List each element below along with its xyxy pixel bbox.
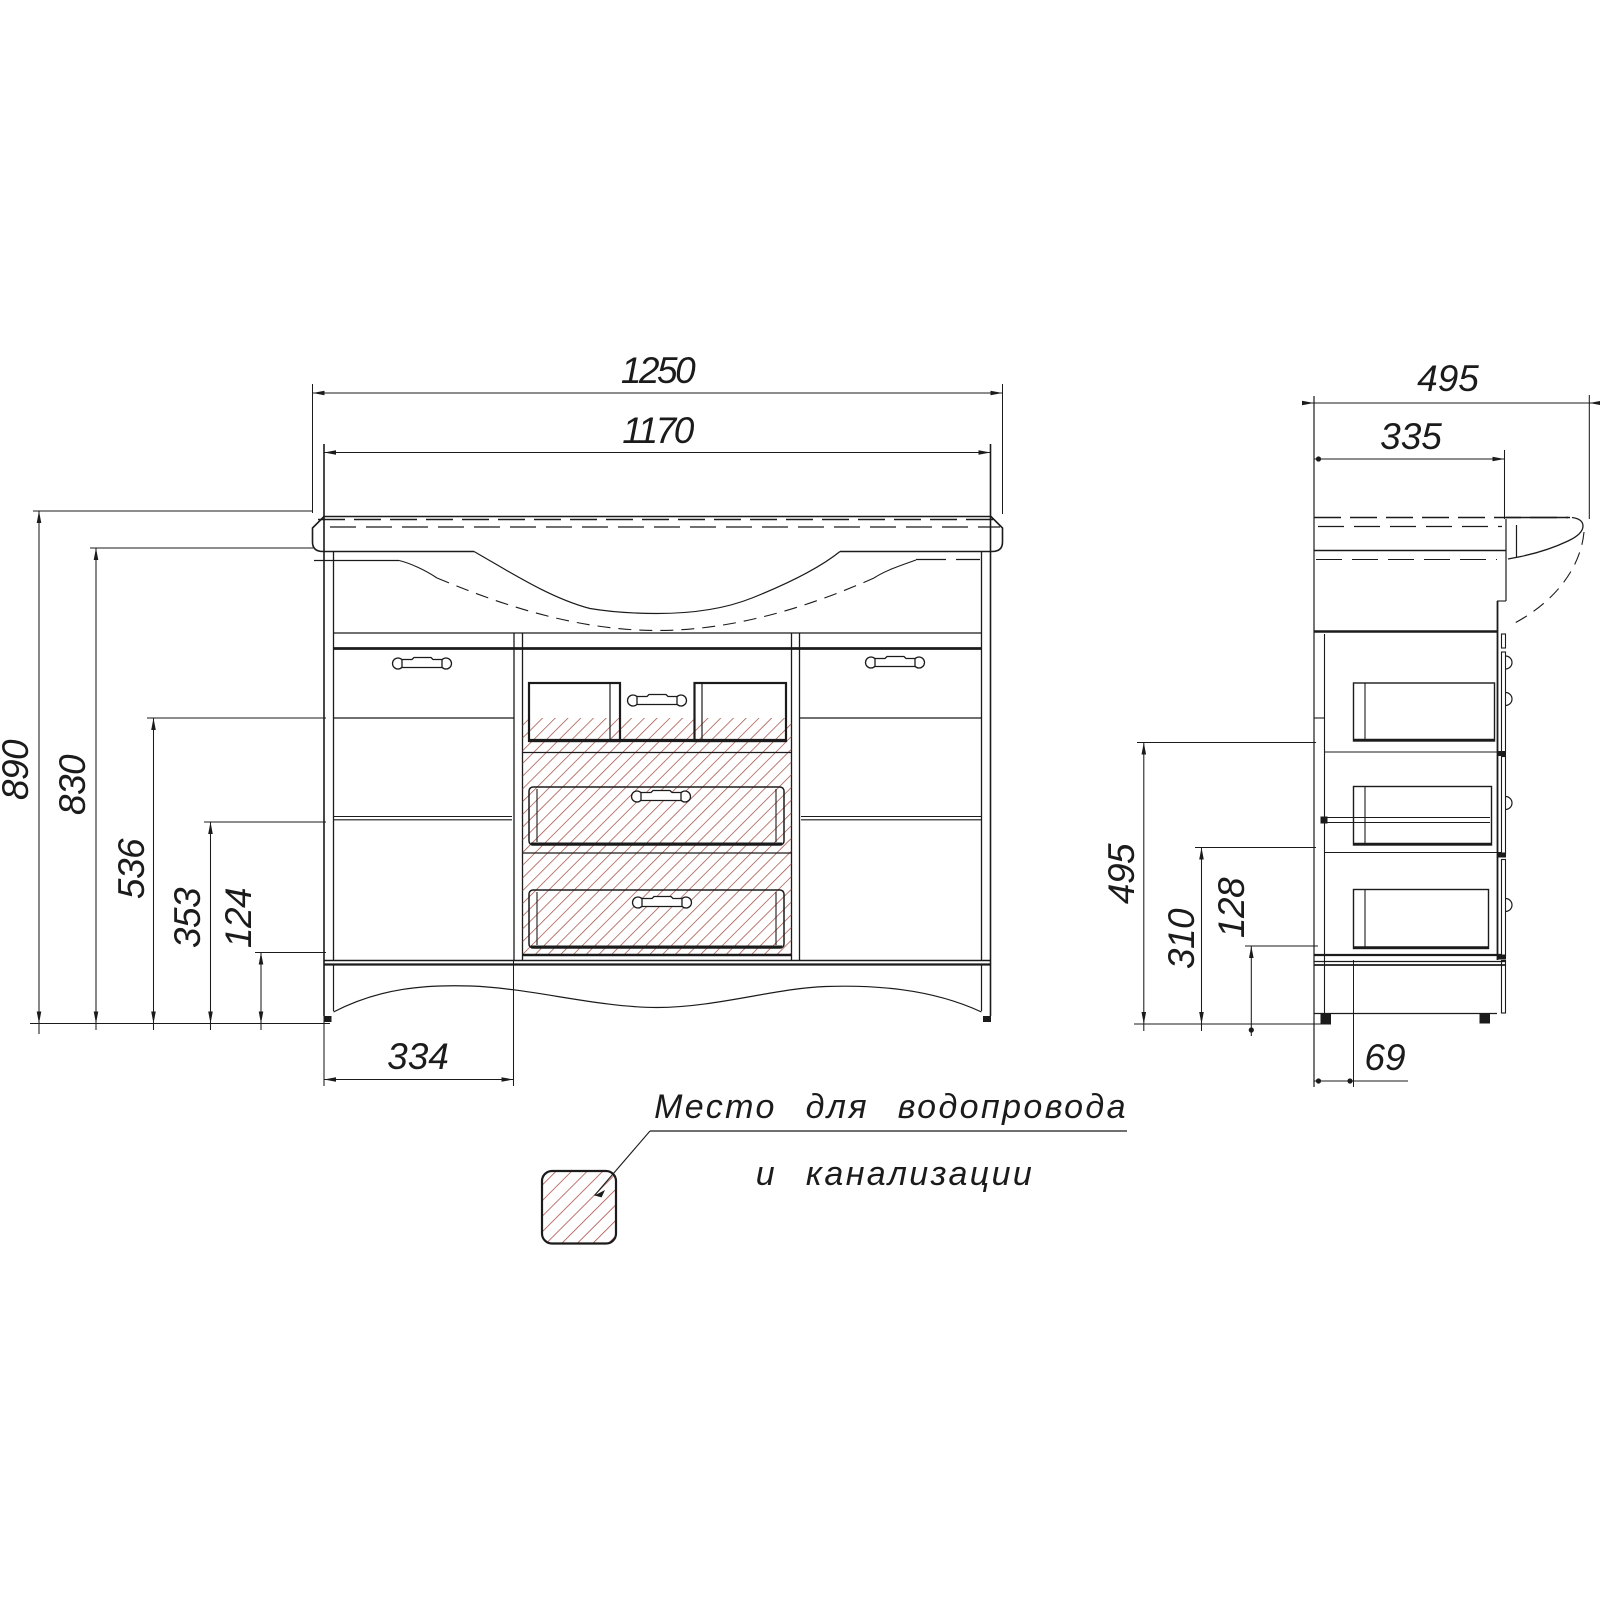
- svg-text:353: 353: [167, 887, 208, 948]
- svg-text:335: 335: [1380, 416, 1442, 457]
- svg-text:124: 124: [218, 888, 259, 948]
- svg-text:1170: 1170: [622, 410, 694, 451]
- svg-text:830: 830: [52, 754, 93, 815]
- svg-text:495: 495: [1101, 843, 1142, 904]
- svg-text:128: 128: [1211, 877, 1252, 938]
- svg-text:890: 890: [0, 739, 36, 800]
- svg-text:310: 310: [1161, 908, 1202, 969]
- svg-text:334: 334: [387, 1036, 449, 1077]
- svg-text:495: 495: [1417, 358, 1479, 399]
- svg-text:Место для водопровода: Место для водопровода: [654, 1088, 1128, 1126]
- svg-text:1250: 1250: [621, 350, 696, 391]
- svg-text:и канализации: и канализации: [756, 1155, 1034, 1193]
- svg-text:536: 536: [111, 838, 152, 899]
- svg-text:69: 69: [1364, 1037, 1405, 1078]
